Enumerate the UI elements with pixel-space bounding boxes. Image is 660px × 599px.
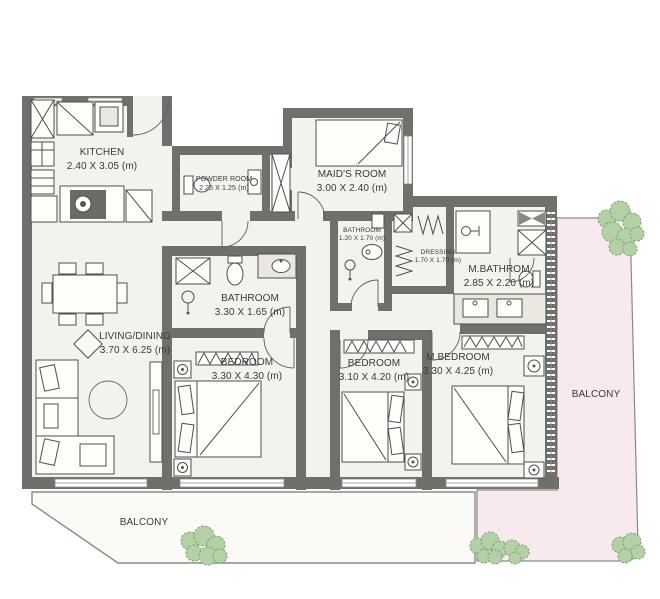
room-label-dressing: DRESSING1.70 X 1.70 (m) <box>415 249 461 265</box>
room-label-powder-room: POWDER ROOM2.25 X 1.25 (m) <box>196 176 252 194</box>
floor-plan: KITCHEN2.40 X 3.05 (m) POWDER ROOM2.25 X… <box>0 0 660 599</box>
room-label-master-bedroom: M.BEDROOM3.30 X 4.25 (m) <box>423 351 493 378</box>
room-label-master-bathroom: M.BATHROM2.85 X 2.20 (m) <box>464 263 534 290</box>
room-label-living-dining: LIVING/DINING3.70 X 6.25 (m) <box>99 330 171 357</box>
balcony-left-floor <box>32 492 475 563</box>
room-label-bathroom: BATHROOM3.30 X 1.65 (m) <box>215 292 285 319</box>
room-label-balcony-left: BALCONY <box>120 516 169 530</box>
tv-unit-icon <box>150 362 162 462</box>
floor-plan-drawing <box>0 0 660 599</box>
room-label-bedroom2: BEDROOM3.10 X 4.20 (m) <box>339 357 409 384</box>
room-label-maids-room: MAID'S ROOM3.00 X 2.40 (m) <box>317 168 387 195</box>
room-label-kitchen: KITCHEN2.40 X 3.05 (m) <box>67 146 137 173</box>
room-label-bedroom1: BEDROOM3.30 X 4.30 (m) <box>212 356 282 383</box>
room-label-balcony-right: BALCONY <box>572 388 621 402</box>
room-label-bathroom-small: BATHROOM1.20 X 1.70 (m) <box>339 227 385 243</box>
